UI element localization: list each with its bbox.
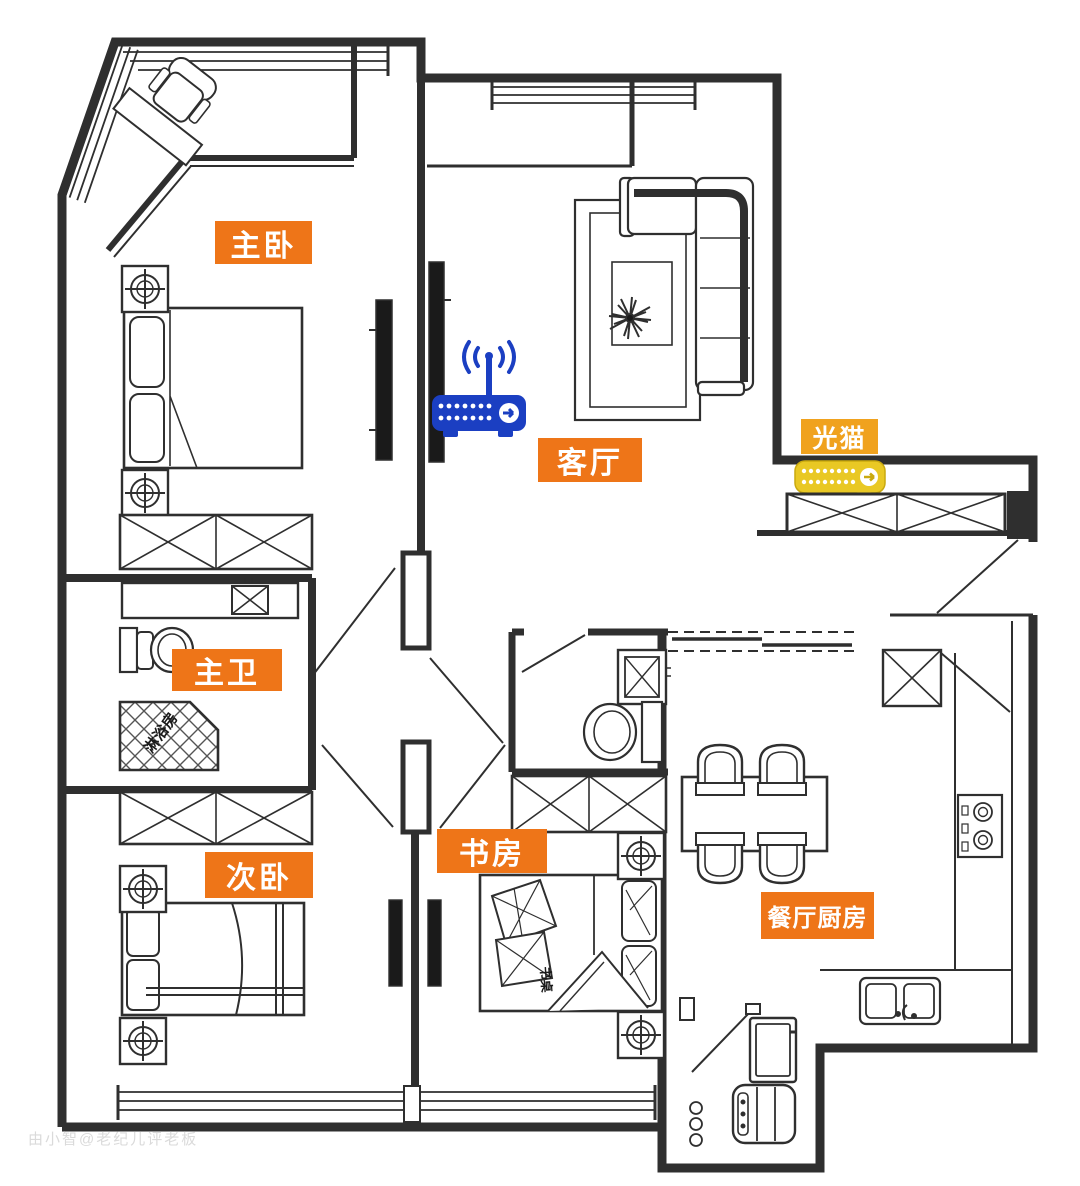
vanity-counter: [122, 583, 298, 618]
second-wardrobe: [120, 792, 312, 844]
wifi-router-icon: [432, 342, 526, 437]
label-second-bedroom: 次卧: [205, 852, 313, 898]
master-wardrobe: [120, 515, 312, 569]
study-tv: [428, 900, 441, 986]
pillow: [622, 881, 656, 941]
hook: [690, 1134, 702, 1146]
label-dining-kitchen: 餐厅厨房: [761, 892, 874, 939]
entry-wall-block: [1008, 492, 1033, 538]
label-master-bedroom: 主卧: [215, 221, 312, 264]
master-bedroom-furniture: [113, 42, 392, 569]
study-wardrobe: [512, 776, 666, 832]
pillow: [130, 317, 164, 387]
watermark: 由小智@老纪儿评老板: [28, 1128, 198, 1149]
kitchen-sink: [860, 978, 940, 1024]
hall-wall-stub-bottom: [403, 742, 429, 832]
label-study: 书房: [437, 829, 547, 873]
label-master-bathroom: 主卫: [172, 649, 282, 691]
second-bedroom-furniture: [120, 792, 441, 1064]
sliding-door: [668, 632, 856, 651]
window-mullion: [404, 1086, 420, 1122]
pillow: [127, 960, 159, 1010]
bath2: [584, 650, 671, 762]
hook: [690, 1118, 702, 1130]
nook-door-frame: [746, 1004, 760, 1014]
foyer-cabinet: [787, 494, 1005, 532]
floor-plan: 主卧 客厅 光猫 主卫 次卧 书房 餐厅厨房 淋浴房 书桌 由小智@老纪儿评老板: [0, 0, 1080, 1186]
rug-center: [612, 262, 672, 345]
fridge: [750, 1018, 796, 1082]
stove: [958, 795, 1002, 857]
living-room-tv: [429, 262, 444, 462]
nook-wall-stub: [680, 998, 694, 1020]
washing-machine: [733, 1085, 795, 1143]
label-optical-modem: 光猫: [801, 419, 878, 454]
label-study-desk: 书桌: [537, 966, 558, 993]
pillow: [127, 908, 159, 956]
label-living-room: 客厅: [538, 438, 642, 482]
optical-modem-icon: [795, 461, 885, 498]
second-bedroom-tv: [389, 900, 402, 986]
floor-plan-canvas: [0, 0, 1080, 1186]
bedroom-tv: [376, 300, 392, 460]
hall-wall-stub-top: [403, 553, 429, 648]
pillow: [130, 394, 164, 462]
hook: [690, 1102, 702, 1114]
